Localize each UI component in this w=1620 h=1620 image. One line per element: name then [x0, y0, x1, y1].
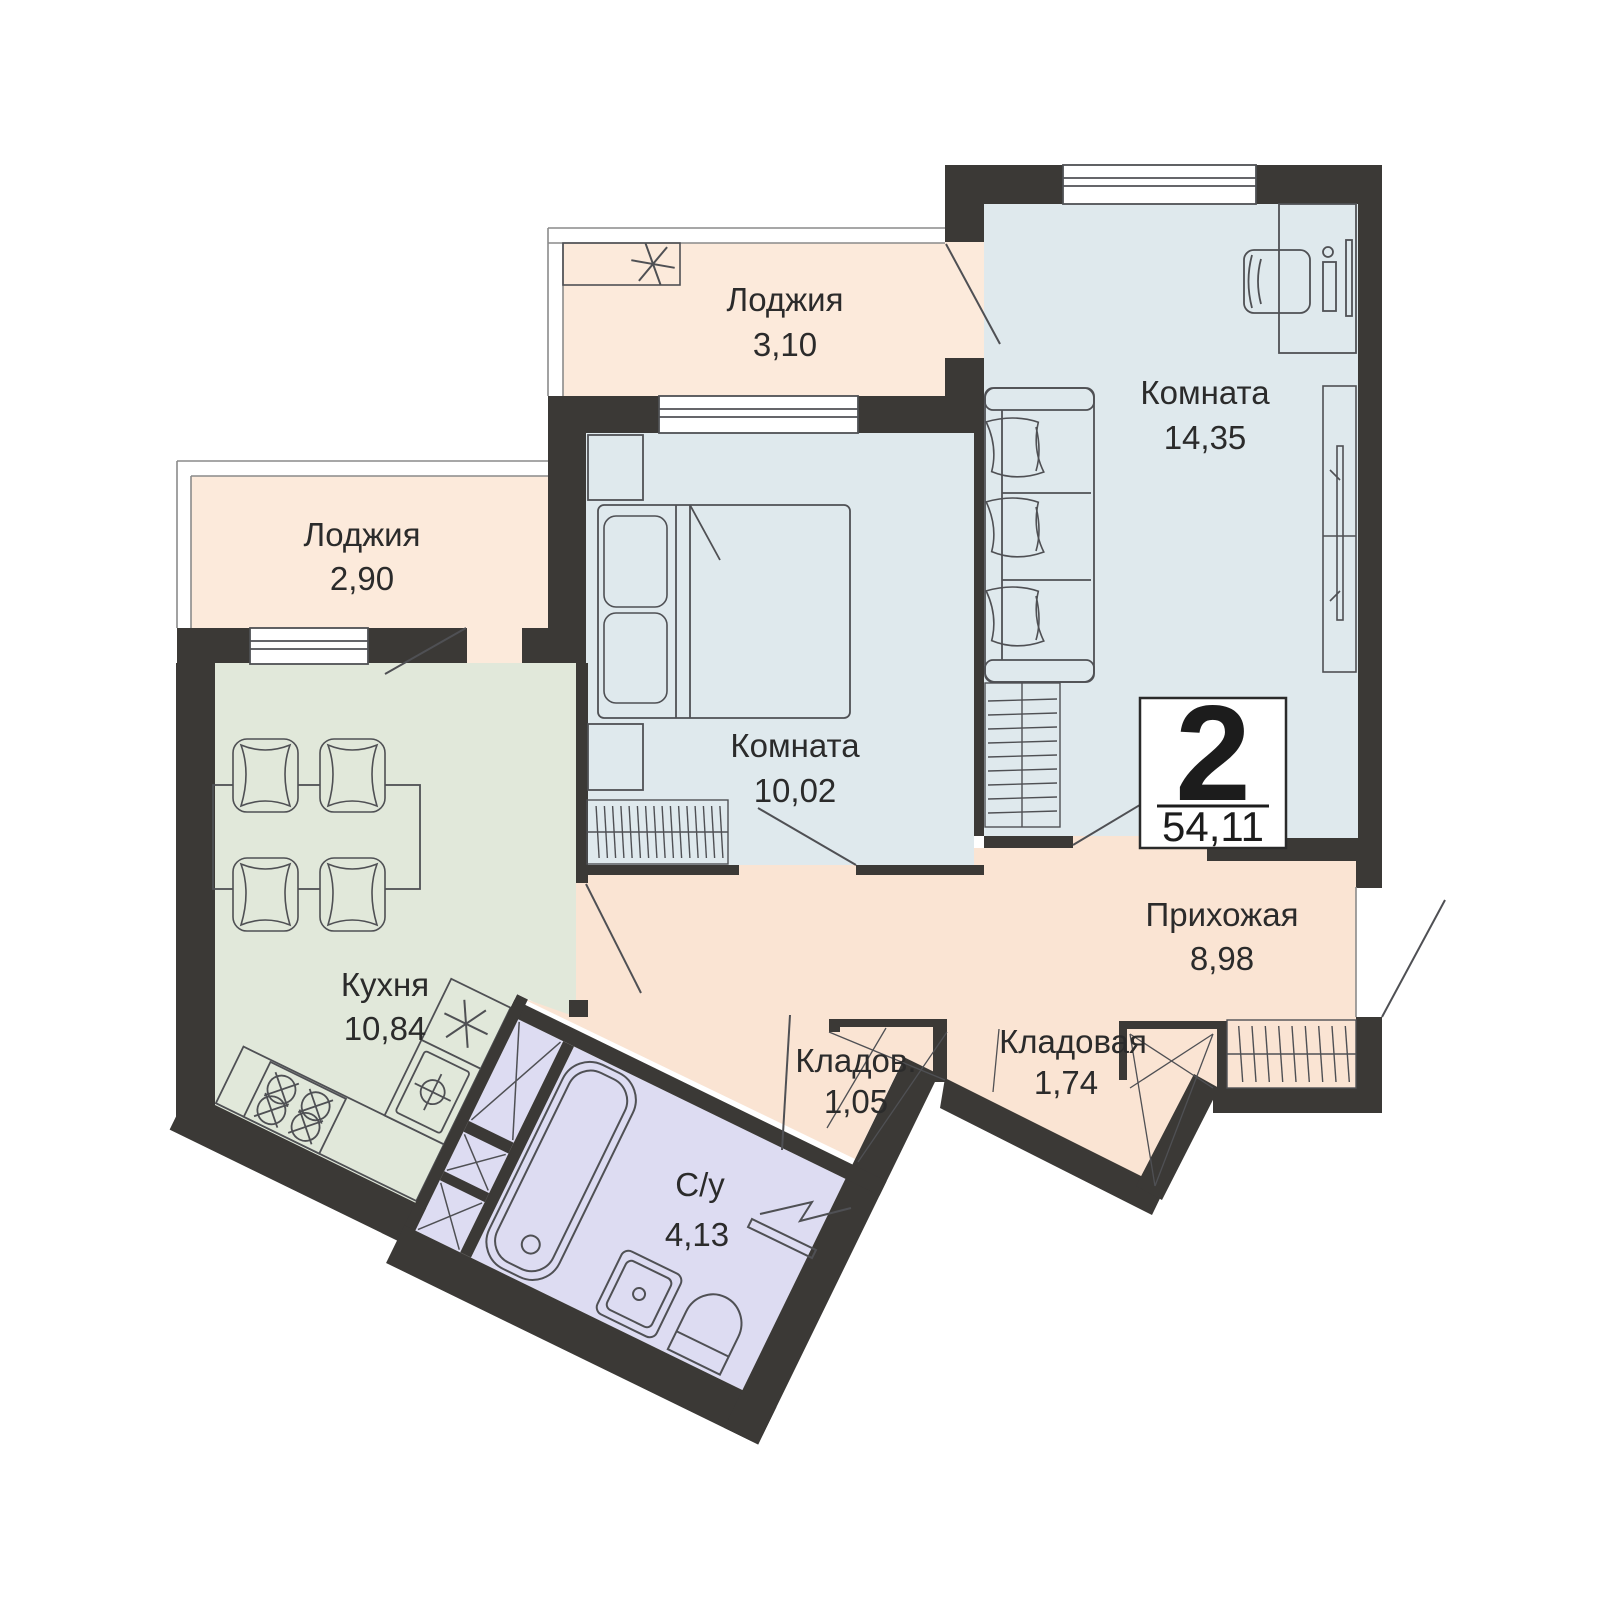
svg-text:Лоджия: Лоджия [727, 281, 844, 318]
svg-text:1,74: 1,74 [1034, 1064, 1098, 1101]
svg-text:10,84: 10,84 [344, 1010, 427, 1047]
svg-text:Комната: Комната [730, 727, 860, 764]
svg-text:14,35: 14,35 [1164, 419, 1247, 456]
svg-text:2,90: 2,90 [330, 560, 394, 597]
svg-text:54,11: 54,11 [1162, 803, 1264, 850]
svg-text:Комната: Комната [1140, 374, 1270, 411]
svg-text:10,02: 10,02 [754, 772, 837, 809]
svg-text:Кухня: Кухня [341, 966, 429, 1003]
svg-text:1,05: 1,05 [824, 1083, 888, 1120]
svg-text:Лоджия: Лоджия [304, 516, 421, 553]
svg-text:3,10: 3,10 [753, 326, 817, 363]
svg-text:Прихожая: Прихожая [1146, 896, 1299, 933]
svg-text:4,13: 4,13 [665, 1216, 729, 1253]
svg-text:С/у: С/у [675, 1166, 725, 1203]
svg-text:Кладовая: Кладовая [999, 1023, 1147, 1060]
svg-text:Кладов.: Кладов. [795, 1042, 916, 1079]
svg-text:8,98: 8,98 [1190, 940, 1254, 977]
